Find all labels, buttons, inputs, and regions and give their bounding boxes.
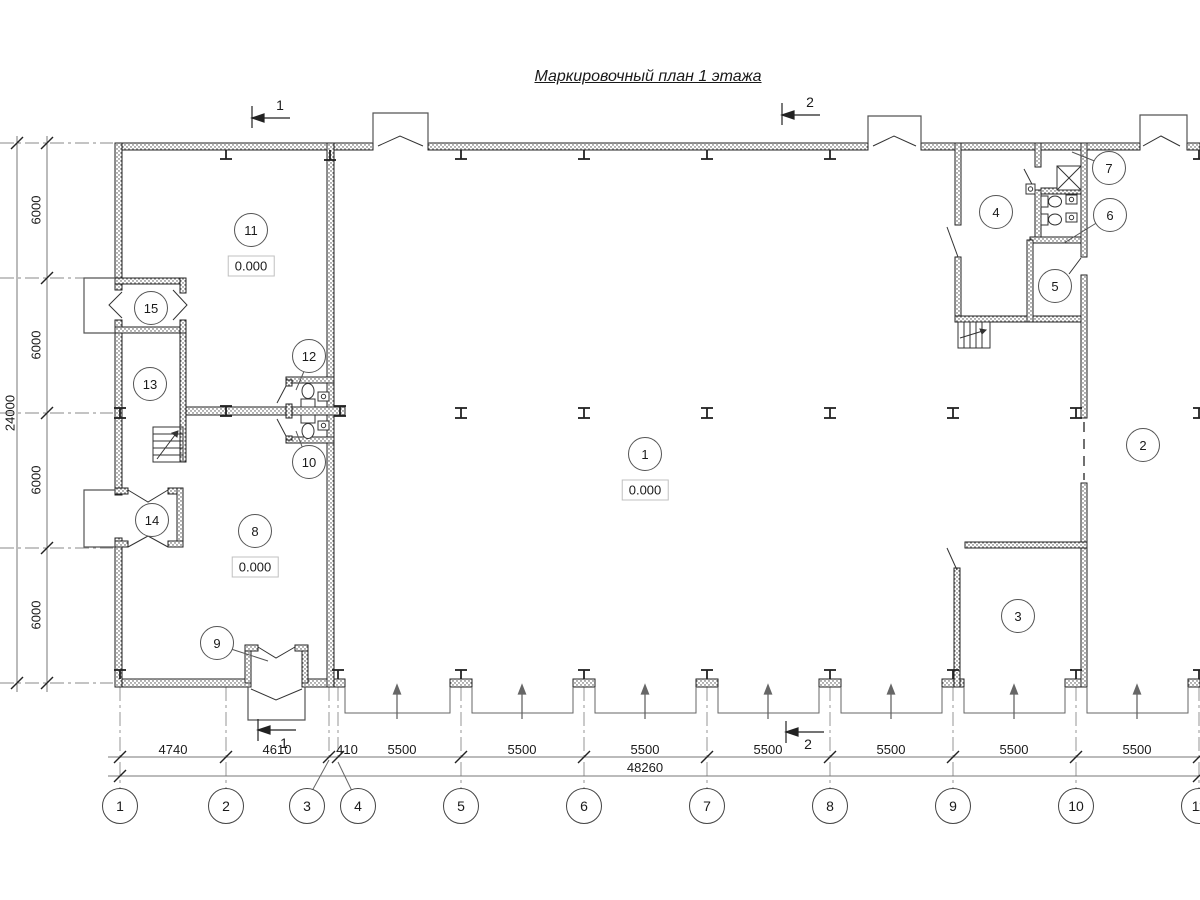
- drawing-title: Маркировочный план 1 этажа: [534, 68, 761, 86]
- room-bubble-11: 11: [234, 213, 268, 247]
- grid-bubble-1: 1: [102, 788, 138, 824]
- grid-bubble-4: 4: [340, 788, 376, 824]
- room-bubble-13: 13: [133, 367, 167, 401]
- dim-h-5: 5500: [508, 742, 537, 757]
- dim-h-6: 5500: [631, 742, 660, 757]
- room-bubble-5: 5: [1038, 269, 1072, 303]
- dim-h-9: 5500: [1000, 742, 1029, 757]
- dim-h-4: 5500: [388, 742, 417, 757]
- grid-bubble-10: 10: [1058, 788, 1094, 824]
- grid-bubble-6: 6: [566, 788, 602, 824]
- dim-h-3: 410: [336, 742, 358, 757]
- ventilation-shaft: [1057, 166, 1081, 190]
- dim-v-total: 24000: [3, 395, 18, 431]
- dim-v-4: 6000: [29, 601, 44, 630]
- room-bubble-2: 2: [1126, 428, 1160, 462]
- dim-h-10: 5500: [1123, 742, 1152, 757]
- room-bubble-14: 14: [135, 503, 169, 537]
- walls: [115, 143, 1200, 687]
- section-1-bottom-label: 1: [280, 735, 288, 751]
- section-2-top-label: 2: [806, 94, 814, 110]
- dim-v-2: 6000: [29, 331, 44, 360]
- grid-bubble-5: 5: [443, 788, 479, 824]
- dim-h-7: 5500: [754, 742, 783, 757]
- elevation-mark: 0.000: [232, 557, 279, 578]
- dim-h-total: 48260: [627, 760, 663, 775]
- room-bubble-15: 15: [134, 291, 168, 325]
- room-bubble-7: 7: [1092, 151, 1126, 185]
- grid-bubble-7: 7: [689, 788, 725, 824]
- door-swings: [277, 169, 1081, 570]
- elevation-mark: 0.000: [622, 480, 669, 501]
- dim-v-3: 6000: [29, 466, 44, 495]
- room-bubble-4: 4: [979, 195, 1013, 229]
- room-bubble-10: 10: [292, 445, 326, 479]
- dim-h-8: 5500: [877, 742, 906, 757]
- grid-bubble-8: 8: [812, 788, 848, 824]
- grid-bubble-2: 2: [208, 788, 244, 824]
- room-bubble-9: 9: [200, 626, 234, 660]
- floor-plan-linework: [0, 0, 1200, 900]
- elevation-mark: 0.000: [228, 256, 275, 277]
- section-markers: [252, 103, 824, 743]
- room-bubble-6: 6: [1093, 198, 1127, 232]
- room-bubble-3: 3: [1001, 599, 1035, 633]
- room-bubble-8: 8: [238, 514, 272, 548]
- room-bubble-12: 12: [292, 339, 326, 373]
- entrance-arrows: [394, 685, 1141, 719]
- section-1-top-label: 1: [276, 97, 284, 113]
- grid-bubble-3: 3: [289, 788, 325, 824]
- floor-plan-page: Маркировочный план 1 этажа 1 2 3 4 5 6 7…: [0, 0, 1200, 900]
- stairs: [153, 322, 990, 462]
- dim-h-1: 4740: [159, 742, 188, 757]
- axis-lines: [0, 143, 1199, 789]
- grid-bubble-9: 9: [935, 788, 971, 824]
- room-bubble-1: 1: [628, 437, 662, 471]
- dim-v-1: 6000: [29, 196, 44, 225]
- section-2-bottom-label: 2: [804, 736, 812, 752]
- room-leaders: [231, 152, 1098, 661]
